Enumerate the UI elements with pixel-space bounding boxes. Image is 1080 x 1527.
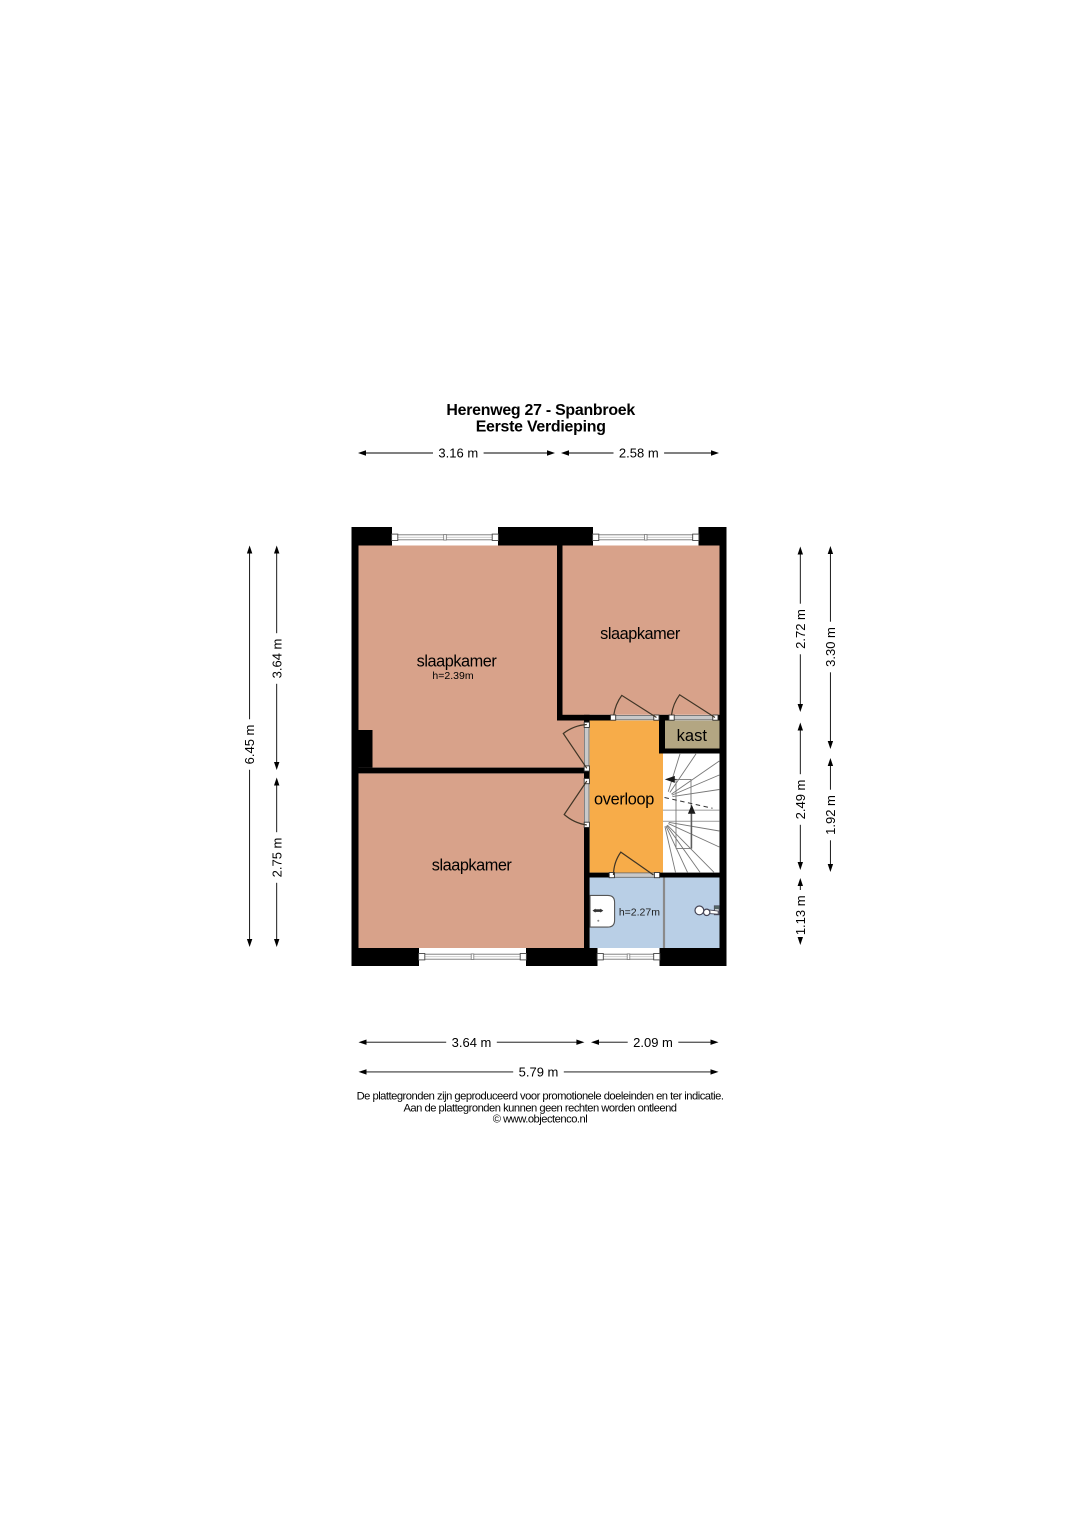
svg-text:De plattegronden zijn geproduc: De plattegronden zijn geproduceerd voor … — [357, 1091, 724, 1103]
svg-text:Eerste Verdieping: Eerste Verdieping — [476, 418, 606, 435]
svg-text:© www.objectenco.nl: © www.objectenco.nl — [493, 1114, 588, 1126]
svg-text:1.13 m: 1.13 m — [793, 895, 808, 935]
svg-text:3.64 m: 3.64 m — [452, 1035, 492, 1050]
svg-text:3.64 m: 3.64 m — [269, 639, 284, 679]
svg-text:slaapkamer: slaapkamer — [432, 857, 513, 875]
svg-text:2.58 m: 2.58 m — [619, 446, 659, 461]
svg-text:3.16 m: 3.16 m — [438, 446, 478, 461]
svg-text:kast: kast — [677, 727, 708, 745]
svg-text:h=2.39m: h=2.39m — [432, 670, 473, 682]
svg-text:slaapkamer: slaapkamer — [417, 653, 498, 671]
svg-text:2.72 m: 2.72 m — [793, 609, 808, 649]
svg-text:1.92 m: 1.92 m — [823, 795, 838, 835]
svg-text:5.79 m: 5.79 m — [519, 1065, 559, 1080]
svg-text:h=2.27m: h=2.27m — [619, 906, 660, 918]
svg-text:Herenweg 27 - Spanbroek: Herenweg 27 - Spanbroek — [446, 402, 635, 419]
svg-text:overloop: overloop — [594, 791, 654, 809]
svg-text:2.09 m: 2.09 m — [633, 1035, 673, 1050]
svg-text:2.75 m: 2.75 m — [269, 838, 284, 878]
svg-text:2.49 m: 2.49 m — [793, 780, 808, 820]
svg-text:6.45 m: 6.45 m — [242, 725, 257, 765]
svg-text:3.30 m: 3.30 m — [823, 627, 838, 667]
svg-text:slaapkamer: slaapkamer — [600, 625, 681, 643]
